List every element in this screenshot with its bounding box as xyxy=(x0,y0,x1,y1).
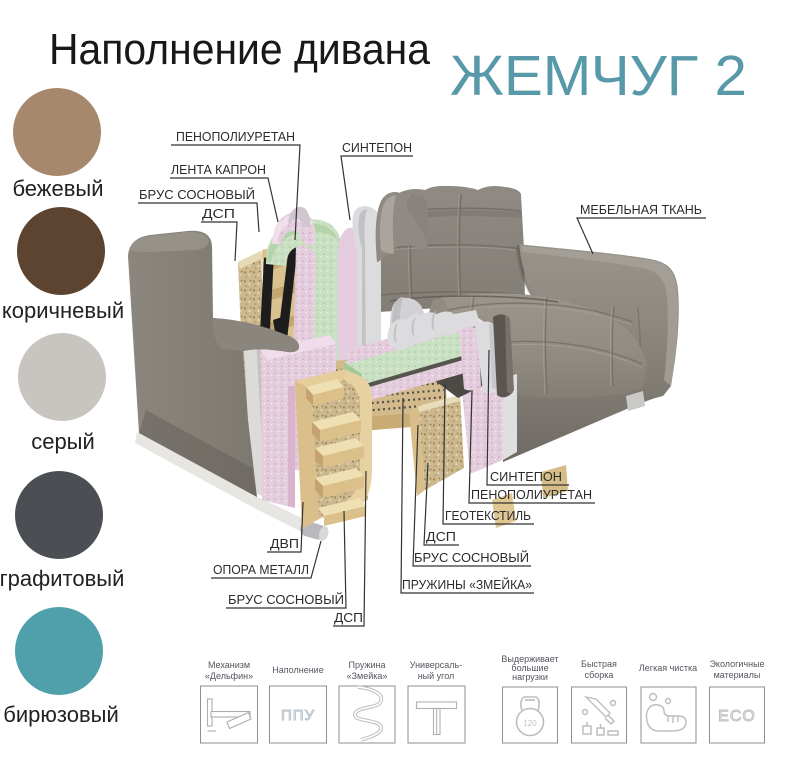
svg-text:ПЕНОПОЛИУРЕТАН: ПЕНОПОЛИУРЕТАН xyxy=(176,129,295,144)
svg-text:«Змейка»: «Змейка» xyxy=(347,671,388,681)
svg-text:ПЕНОПОЛИУРЕТАН: ПЕНОПОЛИУРЕТАН xyxy=(471,487,592,502)
svg-text:ДСП: ДСП xyxy=(426,529,456,544)
svg-text:материалы: материалы xyxy=(714,670,761,680)
svg-text:ОПОРА МЕТАЛЛ: ОПОРА МЕТАЛЛ xyxy=(213,562,309,577)
svg-text:БРУС СОСНОВЫЙ: БРУС СОСНОВЫЙ xyxy=(414,550,529,565)
svg-text:«Дельфин»: «Дельфин» xyxy=(205,671,253,681)
svg-text:Пружина: Пружина xyxy=(349,660,386,670)
svg-text:БРУС СОСНОВЫЙ: БРУС СОСНОВЫЙ xyxy=(139,187,255,202)
svg-text:Наполнение: Наполнение xyxy=(272,665,323,675)
svg-text:БРУС СОСНОВЫЙ: БРУС СОСНОВЫЙ xyxy=(228,592,344,607)
svg-text:серый: серый xyxy=(31,429,95,454)
svg-text:графитовый: графитовый xyxy=(0,566,124,591)
svg-text:МЕБЕЛЬНАЯ ТКАНЬ: МЕБЕЛЬНАЯ ТКАНЬ xyxy=(580,202,702,217)
svg-text:бежевый: бежевый xyxy=(12,176,103,201)
svg-text:ный угол: ный угол xyxy=(418,671,455,681)
svg-text:120: 120 xyxy=(523,719,537,728)
svg-text:нагрузки: нагрузки xyxy=(512,672,548,682)
svg-text:СИНТЕПОН: СИНТЕПОН xyxy=(342,140,412,155)
svg-text:ECO: ECO xyxy=(718,708,756,725)
svg-text:Наполнение дивана: Наполнение дивана xyxy=(49,25,430,74)
svg-text:Быстрая: Быстрая xyxy=(581,659,617,669)
svg-text:бирюзовый: бирюзовый xyxy=(3,702,119,727)
svg-text:СИНТЕПОН: СИНТЕПОН xyxy=(490,469,562,484)
svg-text:ЖЕМЧУГ 2: ЖЕМЧУГ 2 xyxy=(450,44,747,108)
svg-text:Универсаль-: Универсаль- xyxy=(410,660,462,670)
svg-text:ЛЕНТА КАПРОН: ЛЕНТА КАПРОН xyxy=(171,162,266,177)
svg-text:Легкая чистка: Легкая чистка xyxy=(639,663,697,673)
svg-text:сборка: сборка xyxy=(585,670,614,680)
svg-text:ППУ: ППУ xyxy=(281,707,315,724)
svg-text:ГЕОТЕКСТИЛЬ: ГЕОТЕКСТИЛЬ xyxy=(445,508,531,523)
svg-text:ДСП: ДСП xyxy=(202,206,235,221)
svg-text:Экологичные: Экологичные xyxy=(709,659,764,669)
svg-text:коричневый: коричневый xyxy=(2,298,124,323)
svg-text:Механизм: Механизм xyxy=(208,660,250,670)
svg-text:ДСП: ДСП xyxy=(334,610,363,625)
svg-text:ДВП: ДВП xyxy=(270,536,299,551)
svg-text:ПРУЖИНЫ «ЗМЕЙКА»: ПРУЖИНЫ «ЗМЕЙКА» xyxy=(402,577,532,592)
